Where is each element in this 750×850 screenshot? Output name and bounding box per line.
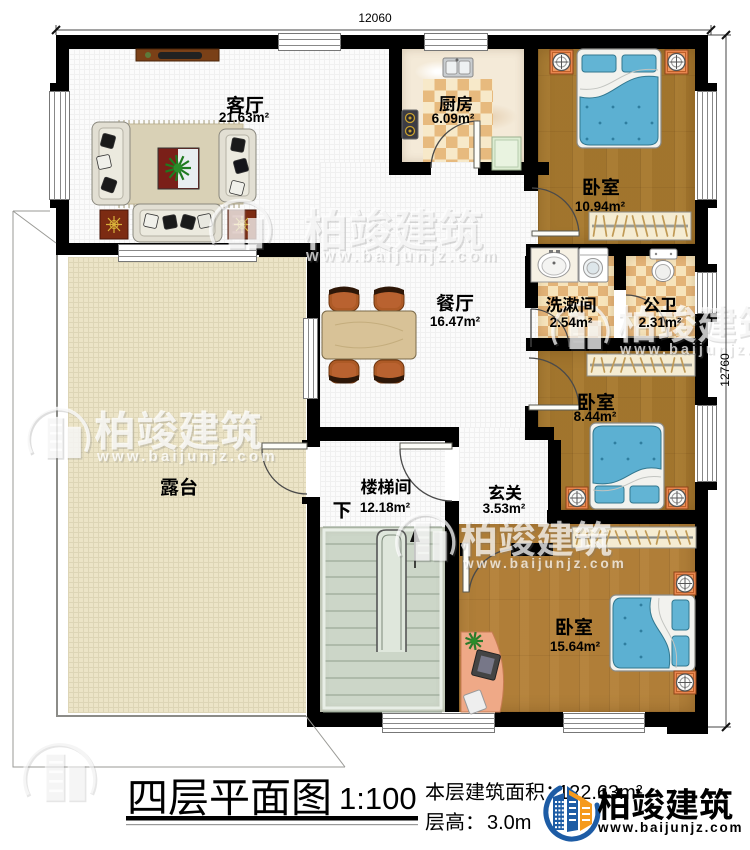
svg-text:6.09m²: 6.09m²: [432, 111, 475, 126]
svg-text:12.18m²: 12.18m²: [360, 500, 411, 515]
svg-text:www.baijunjz.com: www.baijunjz.com: [597, 820, 743, 835]
svg-text:15.64m²: 15.64m²: [550, 639, 601, 654]
svg-text:16.47m²: 16.47m²: [430, 314, 481, 329]
svg-text:21.63m²: 21.63m²: [219, 110, 270, 125]
svg-text:3.0m: 3.0m: [487, 812, 531, 834]
svg-text:2.31m²: 2.31m²: [639, 315, 682, 330]
svg-text:2.54m²: 2.54m²: [550, 315, 593, 330]
svg-text:12760: 12760: [718, 353, 732, 387]
svg-text:12060: 12060: [358, 11, 392, 25]
svg-text:www.baijunjz.com: www.baijunjz.com: [305, 247, 500, 265]
svg-text:www.baijunjz.com: www.baijunjz.com: [462, 556, 627, 571]
svg-text:3.53m²: 3.53m²: [483, 501, 526, 516]
svg-text:1:100: 1:100: [339, 781, 417, 816]
svg-text:www.baijunjz.com: www.baijunjz.com: [96, 448, 278, 465]
svg-text:8.44m²: 8.44m²: [574, 409, 617, 424]
svg-text:10.94m²: 10.94m²: [575, 199, 626, 214]
